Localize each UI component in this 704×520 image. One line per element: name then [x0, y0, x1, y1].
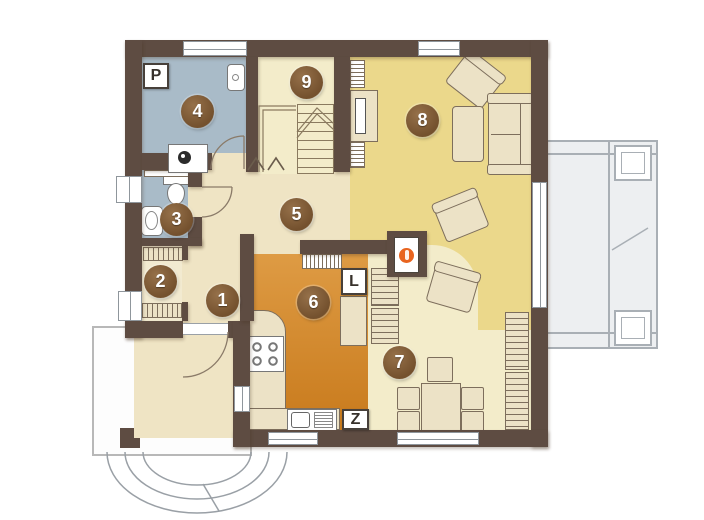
room4-door-arc	[211, 136, 244, 169]
room-marker-9: 9	[290, 66, 323, 99]
porch-step-arc	[107, 452, 287, 513]
label-P: P	[143, 63, 169, 89]
stair-direction-chevron	[248, 158, 264, 170]
room-marker-4: 4	[181, 95, 214, 128]
room-marker-1: 1	[206, 284, 239, 317]
fireplace-icon	[394, 237, 419, 273]
room-marker-7: 7	[383, 346, 416, 379]
floor-plan-canvas: 1 2 3 4 5 6 7 8 9 P L Z	[0, 0, 704, 520]
stair-direction-chevron	[268, 158, 284, 170]
terrace-stair-line	[612, 228, 648, 250]
room-marker-8: 8	[406, 104, 439, 137]
porch-step-arc	[125, 452, 269, 499]
room-marker-2: 2	[144, 265, 177, 298]
entrance-door-arc	[183, 332, 228, 377]
porch-step-arc	[143, 452, 251, 485]
stair-break-line	[297, 108, 334, 132]
room-marker-3: 3	[160, 203, 193, 236]
room-marker-5: 5	[280, 198, 313, 231]
label-L: L	[341, 268, 367, 295]
room-marker-6: 6	[297, 286, 330, 319]
stair-rail	[259, 106, 296, 172]
line-overlay	[0, 0, 704, 520]
label-Z: Z	[342, 409, 369, 430]
room3-door-arc	[202, 187, 232, 217]
